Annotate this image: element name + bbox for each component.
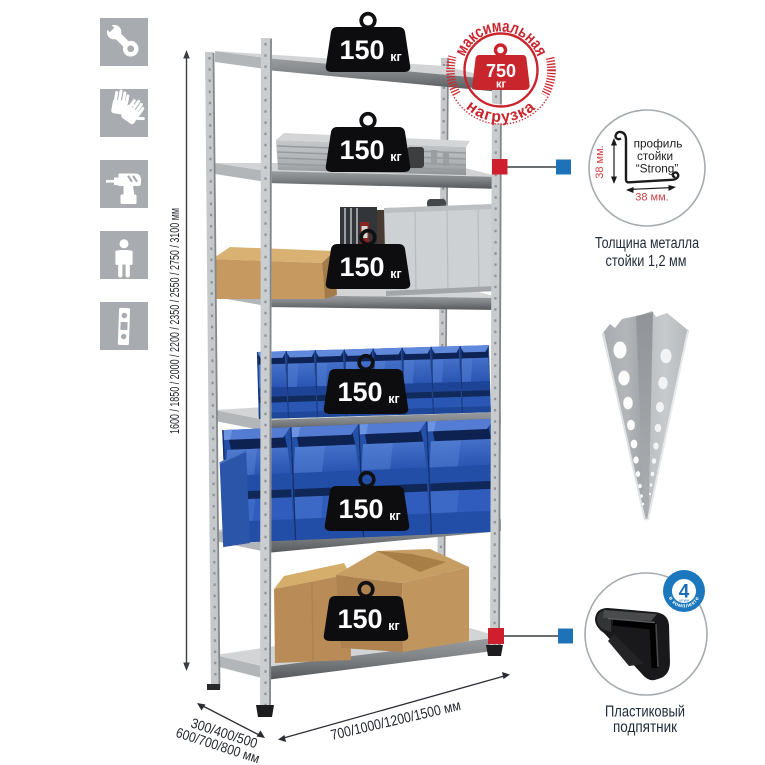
svg-text:38 мм.: 38 мм. <box>594 145 606 178</box>
svg-text:подпятник: подпятник <box>613 719 677 736</box>
svg-text:38 мм.: 38 мм. <box>635 192 668 204</box>
svg-text:стойки 1,2 мм: стойки 1,2 мм <box>606 253 687 270</box>
svg-text:Толщина металла: Толщина металла <box>595 235 699 252</box>
svg-text:штуки: штуки <box>679 598 689 602</box>
svg-text:Пластиковый: Пластиковый <box>605 704 685 721</box>
svg-text:“Strong”: “Strong” <box>636 162 679 176</box>
svg-text:1600 / 1850 / 2000 / 2200 / 23: 1600 / 1850 / 2000 / 2200 / 2350 / 2550 … <box>167 208 182 434</box>
svg-text:кг: кг <box>496 79 507 91</box>
